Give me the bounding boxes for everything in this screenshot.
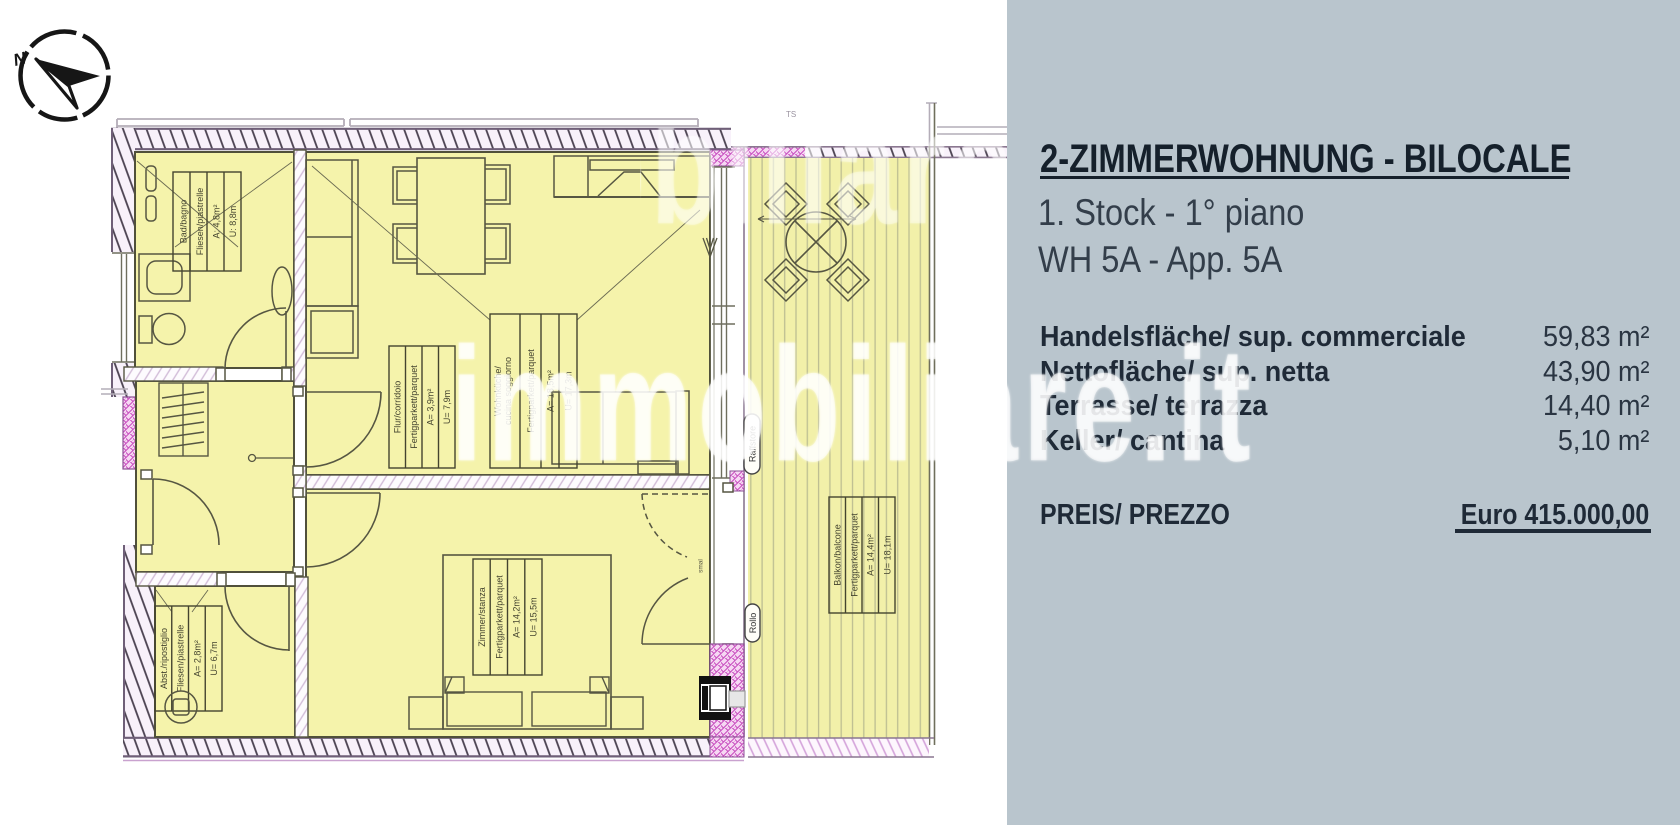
svg-text:Flur/corridoio: Flur/corridoio	[393, 381, 403, 434]
svg-text:Abst./ripostiglio: Abst./ripostiglio	[159, 628, 169, 689]
svg-text:U= 15,5m: U= 15,5m	[529, 597, 539, 636]
svg-text:Fliesen/piastrelle: Fliesen/piastrelle	[176, 625, 186, 693]
svg-text:Fertigparkett/parquet: Fertigparkett/parquet	[409, 365, 419, 449]
svg-text:smal: smal	[698, 559, 705, 573]
svg-text:A= 2,8m²: A= 2,8m²	[193, 640, 203, 677]
svg-text:A: 4,8m²: A: 4,8m²	[212, 204, 222, 238]
svg-text:Fertigparkett/parquet: Fertigparkett/parquet	[495, 575, 505, 659]
svg-text:U= 18,1m: U= 18,1m	[883, 535, 893, 574]
svg-text:U: 8,8m: U: 8,8m	[228, 206, 238, 238]
svg-text:Fertigparkett/parquet: Fertigparkett/parquet	[850, 513, 860, 597]
svg-text:A= 14,2m²: A= 14,2m²	[512, 596, 522, 638]
svg-text:Bad/bagno: Bad/bagno	[179, 200, 189, 244]
svg-text:A= 14,4m²: A= 14,4m²	[866, 534, 876, 576]
svg-text:Fliesen/piastrelle: Fliesen/piastrelle	[195, 188, 205, 256]
svg-text:Balkon/balcone: Balkon/balcone	[833, 524, 843, 586]
svg-text:U= 6,7m: U= 6,7m	[209, 641, 219, 675]
svg-text:TS: TS	[786, 110, 796, 119]
svg-text:A= 3,9m²: A= 3,9m²	[426, 389, 436, 426]
svg-text:Zimmer/stanza: Zimmer/stanza	[477, 587, 487, 647]
svg-text:Rollo: Rollo	[748, 613, 758, 634]
